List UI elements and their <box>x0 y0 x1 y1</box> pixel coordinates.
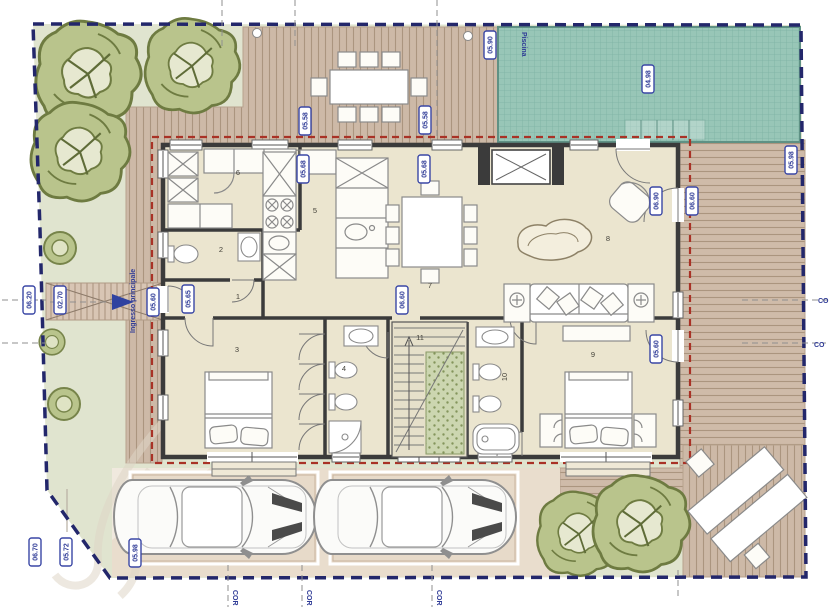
dim-label: 05.72 <box>64 543 71 561</box>
sofa <box>504 284 654 322</box>
room-number-9: 9 <box>591 350 595 359</box>
dresser <box>563 326 630 341</box>
room-number-8: 8 <box>606 234 610 243</box>
bush <box>44 232 76 264</box>
room-number-6: 6 <box>236 168 240 177</box>
boundary-marker-cor: COR <box>435 590 442 606</box>
dim-label: 05.60 <box>654 340 661 358</box>
boundary-marker-co: CO <box>818 298 829 305</box>
room-number-11: 11 <box>416 333 424 342</box>
dim-label: 06.70 <box>33 543 40 561</box>
dim-label: 02.70 <box>58 291 65 309</box>
room-number-1: 1 <box>236 292 240 301</box>
dim-label: 05.60 <box>151 293 158 311</box>
bed-3 <box>205 372 272 448</box>
deck-light <box>253 29 262 38</box>
deck-light <box>464 32 473 41</box>
dim-label: 05.58 <box>423 111 430 129</box>
boundary-marker-cor: COR <box>231 590 238 606</box>
dim-label: 05.90 <box>488 36 495 54</box>
dim-label: 05.58 <box>303 112 310 130</box>
tree <box>145 18 240 113</box>
boundary-marker-co: CO <box>814 342 825 349</box>
tree <box>31 102 130 201</box>
dim-label: 06.90 <box>654 192 661 210</box>
right-deck <box>680 140 805 470</box>
dim-label: 05.68 <box>301 160 308 178</box>
pool-name-label: Piscina <box>520 32 527 57</box>
dim-label: 06.20 <box>27 291 34 309</box>
dim-label: 05.98 <box>789 151 796 169</box>
dim-label: 06.60 <box>690 192 697 210</box>
floor-plan-page: Piscina Ingresso principale <box>0 0 834 613</box>
room-number-3: 3 <box>235 345 239 354</box>
bush <box>48 388 80 420</box>
entrance-label: Ingresso principale <box>130 269 137 333</box>
car-left <box>114 475 316 559</box>
bed-9 <box>565 372 632 448</box>
dim-label: 04.98 <box>646 70 653 88</box>
room-number-10: 10 <box>500 373 509 381</box>
dim-label: 05.65 <box>186 290 193 308</box>
boundary-marker-cor: COR <box>305 590 312 606</box>
dim-label: 05.98 <box>133 544 140 562</box>
tree <box>593 475 690 572</box>
site-plan-drawing: Piscina Ingresso principale <box>0 0 834 613</box>
room-number-2: 2 <box>219 245 223 254</box>
kitchen-island <box>336 158 388 278</box>
dim-label: 06.60 <box>400 291 407 309</box>
dim-label: 05.68 <box>422 160 429 178</box>
room-number-7: 7 <box>428 281 432 290</box>
room-number-4: 4 <box>342 364 346 373</box>
staircase <box>392 322 467 457</box>
car-right <box>314 475 516 559</box>
room-number-5: 5 <box>313 206 317 215</box>
